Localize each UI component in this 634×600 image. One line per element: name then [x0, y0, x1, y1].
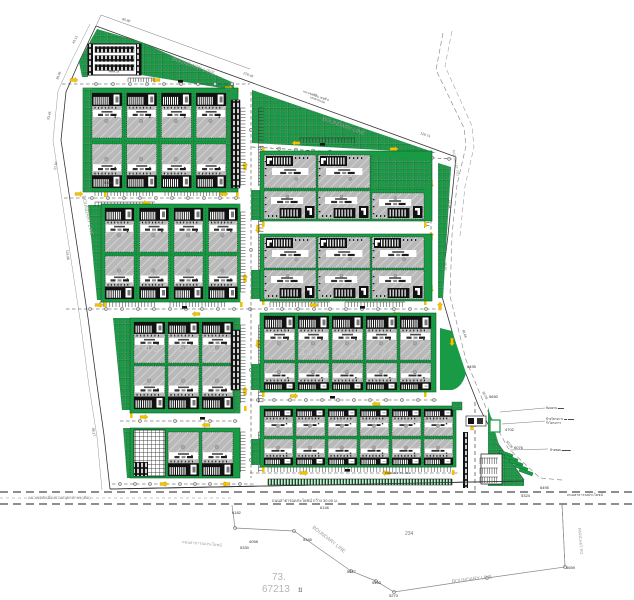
svg-text:7 6: 7 6 — [380, 346, 395, 358]
svg-text:4702: 4702 — [505, 427, 515, 432]
svg-text:ถนนสาธารณประโยชน์: ถนนสาธารณประโยชน์ — [567, 492, 603, 497]
svg-text:5477: 5477 — [347, 569, 357, 574]
svg-text:5463: 5463 — [372, 580, 382, 585]
svg-text:6495: 6495 — [540, 485, 550, 490]
svg-text:5345: 5345 — [303, 537, 313, 542]
svg-text:5338: 5338 — [104, 180, 114, 185]
svg-text:73.: 73. — [272, 572, 286, 583]
svg-text:ป้ายซอย ▬▬▬: ป้ายซอย ▬▬▬ — [550, 448, 571, 452]
svg-text:13 5: 13 5 — [300, 346, 321, 358]
svg-text:6146: 6146 — [320, 505, 330, 510]
svg-text:6495: 6495 — [467, 364, 477, 369]
svg-text:6182: 6182 — [232, 510, 242, 515]
svg-text:67213: 67213 — [262, 584, 290, 595]
svg-text:5324: 5324 — [521, 493, 531, 498]
svg-text:ถนนเมน 2 กว. 16 ม.: ถนนเมน 2 กว. 16 ม. — [385, 471, 412, 475]
svg-text:4058: 4058 — [249, 539, 259, 544]
svg-text:PARK 26: PARK 26 — [109, 70, 120, 74]
svg-text:5650: 5650 — [489, 394, 499, 399]
svg-text:38.97: 38.97 — [443, 262, 447, 271]
svg-text:5273: 5273 — [389, 593, 399, 598]
svg-text:04 3: 04 3 — [138, 343, 159, 355]
svg-text:5659: 5659 — [566, 565, 576, 570]
svg-text:ถนนสาธารณประโยชน์ กว้าง 30.00: ถนนสาธารณประโยชน์ กว้าง 30.00 ม. — [272, 498, 338, 503]
svg-text:6076: 6076 — [514, 445, 524, 450]
svg-text:65.94: 65.94 — [447, 200, 452, 209]
svg-text:75 8: 75 8 — [172, 343, 193, 355]
svg-text:11 7: 11 7 — [206, 343, 227, 355]
svg-text:รั้วโครงการ: รั้วโครงการ — [546, 420, 562, 425]
svg-text:234: 234 — [405, 531, 414, 537]
svg-text:5 17: 5 17 — [340, 346, 361, 358]
svg-text:ป้อมยาม ▬▬: ป้อมยาม ▬▬ — [546, 406, 564, 410]
svg-text:ย: ย — [298, 585, 303, 594]
svg-text:5330: 5330 — [240, 545, 250, 550]
